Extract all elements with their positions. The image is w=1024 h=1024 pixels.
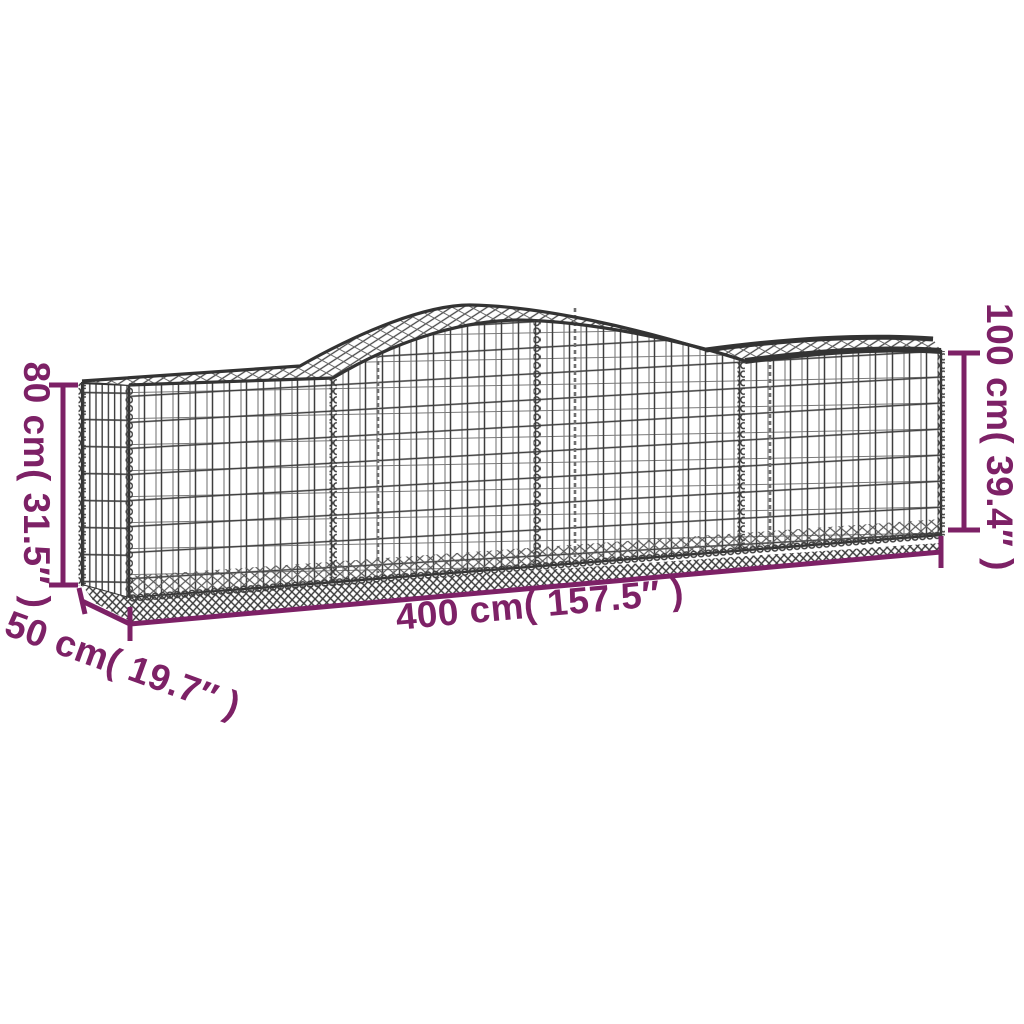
dimension-height-right [948,353,980,530]
gabion-diagram-svg: 80 cm( 31.5″ ) 100 cm( 39.4″ ) 400 cm( 1… [0,0,1024,1024]
height-right-label: 100 cm( 39.4″ ) [979,303,1020,571]
coil-divider-3 [738,361,745,551]
product-diagram-canvas: 80 cm( 31.5″ ) 100 cm( 39.4″ ) 400 cm( 1… [0,0,1024,1024]
coil-back-left-edge [79,383,86,586]
height-left-label: 80 cm( 31.5″ ) [16,362,57,609]
coil-divider-2 [534,320,541,567]
coil-front-left-edge [126,385,133,599]
coil-right-edge [938,351,945,536]
coil-divider-1 [330,378,337,583]
gabion-basket-illustration [79,305,945,622]
basket-end-wall [82,383,129,598]
